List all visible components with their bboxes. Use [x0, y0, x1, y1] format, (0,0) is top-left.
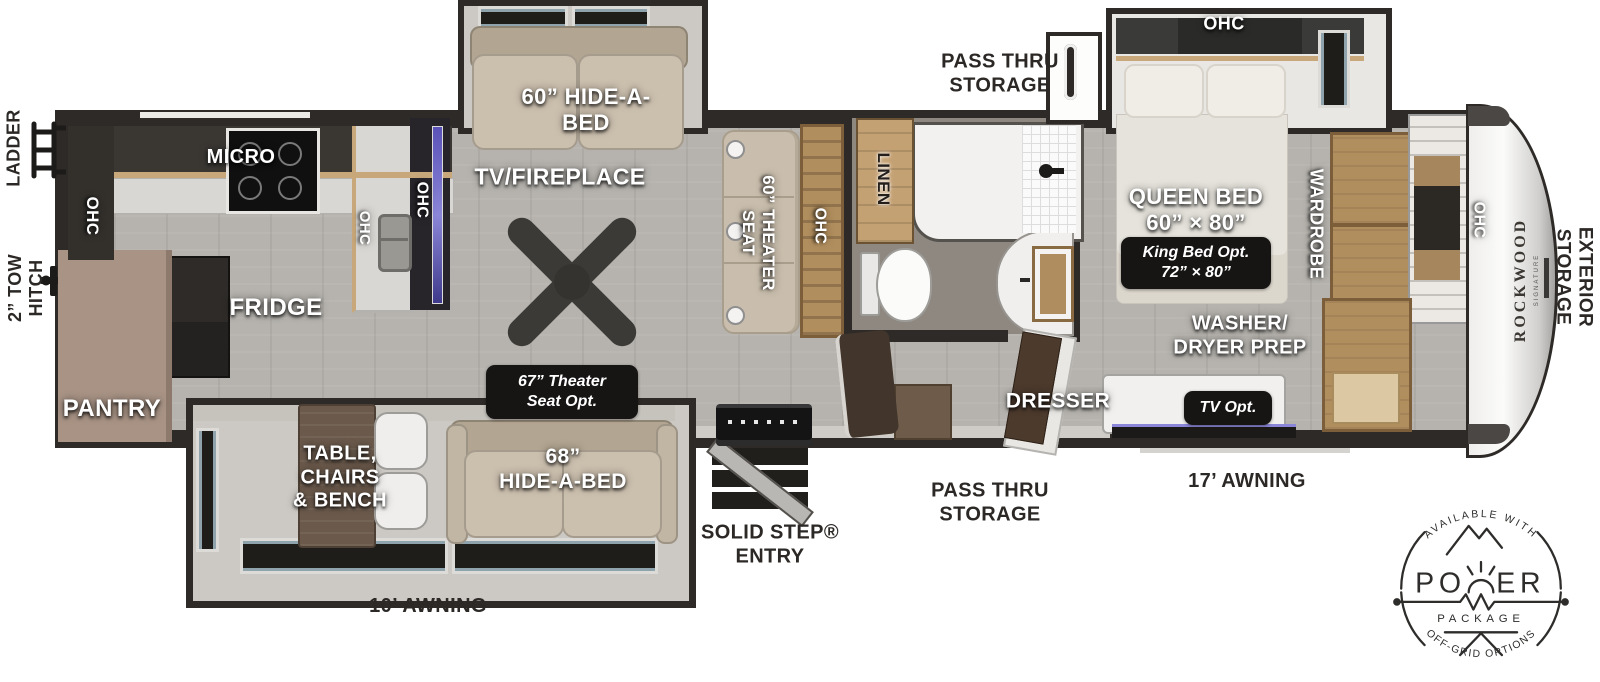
ladder-icon	[26, 120, 66, 180]
fridge-label: FRIDGE	[229, 294, 322, 322]
ohc-label-kitchen-rear: OHC	[82, 197, 102, 236]
badge-power-right: ER	[1496, 567, 1545, 599]
stove-burner	[238, 176, 262, 200]
pantry-label: PANTRY	[63, 395, 161, 423]
tv-screen	[432, 126, 443, 304]
ceiling-fan-hub	[554, 264, 590, 300]
stove-burner	[278, 142, 302, 166]
king-bed-opt-badge: King Bed Opt. 72” × 80”	[1121, 237, 1271, 289]
cupholder	[726, 306, 745, 325]
dinette-window-bottom	[452, 538, 658, 574]
sun-ray	[1490, 567, 1495, 575]
badge-power-left: PO	[1415, 567, 1466, 599]
mountain-icon	[1447, 526, 1502, 555]
bedroom-steps	[894, 384, 952, 440]
bedroom-cabinet-top	[1332, 372, 1400, 424]
cap-corner-bottom	[1468, 424, 1510, 444]
pass-thru-top-label: PASS THRU STORAGE	[941, 50, 1059, 97]
ohc-label-theater: OHC	[810, 208, 829, 245]
power-package-badge: AVAILABLE WITH PO ER PACKAGE OFF-GRID OP…	[1386, 486, 1576, 676]
wardrobe-cabinet	[1330, 132, 1420, 226]
brand-sub: SIGNATURE	[1534, 254, 1540, 307]
table-chairs-label: TABLE, CHAIRS & BENCH	[293, 443, 387, 514]
pass-thru-slot	[1064, 44, 1077, 100]
awning-10-label: 10’ AWNING	[369, 595, 487, 619]
kitchen-sink	[378, 214, 412, 272]
griddle	[716, 404, 812, 446]
tow-hitch-label: 2” TOW HITCH	[5, 254, 47, 322]
pass-thru-bottom-label: PASS THRU STORAGE	[931, 479, 1049, 526]
tv-opt-badge: TV Opt.	[1184, 391, 1272, 425]
exterior-storage-label: EXTERIOR STORAGE	[1551, 227, 1596, 327]
line-dot	[1562, 599, 1567, 604]
queen-bed-label: QUEEN BED 60” × 80”	[1129, 184, 1263, 236]
floorplan: ROCKWOOD SIGNATURE EXTERIOR STORAGE LADD…	[0, 0, 1600, 682]
dinette-window-side	[196, 428, 219, 552]
toilet-bowl	[876, 248, 932, 322]
sink-divider	[380, 238, 408, 241]
kitchen-ohc-column	[68, 126, 114, 260]
micro-label: MICRO	[207, 146, 276, 170]
pillow	[1124, 64, 1204, 118]
pillow	[1206, 64, 1286, 118]
front-shelving-dark	[1414, 156, 1460, 280]
kitchen-window	[140, 112, 310, 118]
ohc-label-bed: OHC	[1203, 13, 1244, 34]
washer-dryer-label: WASHER/ DRYER PREP	[1173, 312, 1306, 359]
sun-icon	[1469, 580, 1494, 592]
awning-rail	[1140, 448, 1350, 453]
vanity-faucet	[1020, 278, 1030, 282]
awning-17-label: 17’ AWNING	[1188, 470, 1306, 494]
ohc-label-media: OHC	[412, 182, 431, 219]
stove-burner	[278, 176, 302, 200]
badge-arc	[1537, 592, 1560, 645]
ohc-label-front: OHC	[1469, 202, 1488, 239]
line-dot	[1394, 599, 1399, 604]
ladder-label: LADDER	[3, 109, 24, 186]
ohc-label-kitchen-counter: OHC	[355, 211, 373, 246]
theater-opt-badge: 67” Theater Seat Opt.	[486, 365, 638, 419]
linen-label: LINEN	[873, 153, 893, 206]
wardrobe-label: WARDROBE	[1305, 169, 1326, 279]
badge-arc	[1401, 592, 1424, 645]
cupholder	[726, 140, 745, 159]
cap-corner-top	[1468, 106, 1510, 126]
theater-seat-label: 60” THEATER SEAT	[738, 175, 778, 291]
bath-door	[835, 329, 900, 438]
vanity-mirror	[1032, 246, 1074, 322]
showerhead-icon	[1036, 158, 1066, 184]
brand-logo: ROCKWOOD	[1512, 218, 1530, 342]
tv-fireplace-label: TV/FIREPLACE	[475, 163, 646, 190]
badge-package-text: PACKAGE	[1437, 613, 1524, 625]
hide-a-bed-68-label: 68” HIDE-A-BED	[499, 445, 627, 495]
griddle-dots	[728, 420, 800, 424]
solid-step-label: SOLID STEP® ENTRY	[701, 521, 839, 568]
sun-ray	[1468, 567, 1473, 575]
storage-handle	[1544, 258, 1549, 298]
tv-strip	[1112, 424, 1296, 438]
hide-a-bed-60-label: 60” HIDE-A- BED	[521, 84, 650, 136]
bed-slide-window	[1318, 30, 1350, 108]
dresser-label: DRESSER	[1006, 390, 1110, 415]
stove	[226, 128, 320, 214]
